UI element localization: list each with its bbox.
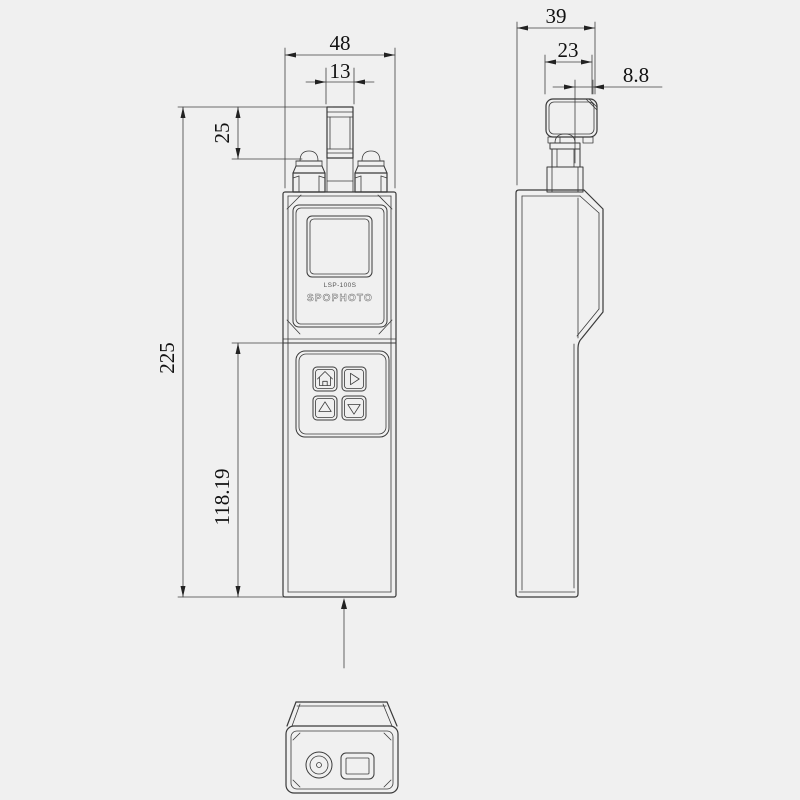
- dim-label-25: 25: [210, 123, 234, 144]
- side-connector: [547, 134, 583, 192]
- brand-logo: SPOPHOTO: [307, 293, 373, 304]
- screen: [307, 216, 372, 277]
- dim-cap-depth: 8.8: [553, 63, 662, 163]
- arrow-right-icon: [351, 373, 360, 384]
- home-icon: [318, 372, 333, 386]
- bottom-view: [286, 598, 398, 793]
- dim-connector-width: 13: [306, 59, 374, 104]
- front-body: [283, 192, 396, 597]
- dim-label-48: 48: [330, 31, 351, 55]
- dim-label-39: 39: [546, 4, 567, 28]
- dim-body-height: 118.19: [210, 343, 284, 597]
- dim-head-depth: 39: [517, 4, 595, 185]
- right-button[interactable]: [342, 367, 366, 391]
- dim-label-13: 13: [330, 59, 351, 83]
- side-body: [516, 190, 603, 597]
- front-keypad: [296, 351, 389, 437]
- dim-label-23: 23: [558, 38, 579, 62]
- front-left-cap: [293, 151, 325, 192]
- dim-overall-width: 48: [285, 31, 395, 188]
- dim-label-8-8: 8.8: [623, 63, 649, 87]
- usb-port: [341, 753, 374, 779]
- technical-drawing-page: LSP-100S SPOPHOTO: [0, 0, 800, 800]
- side-view: 39 23 8.8: [516, 4, 662, 597]
- down-button[interactable]: [342, 396, 366, 420]
- front-view: LSP-100S SPOPHOTO: [155, 31, 396, 597]
- side-cap: [546, 99, 597, 143]
- bottom-top-face: [287, 702, 397, 726]
- front-connector-tube: [327, 107, 353, 192]
- up-button[interactable]: [313, 396, 337, 420]
- front-display-bezel: LSP-100S SPOPHOTO: [283, 195, 396, 343]
- bottom-face: [286, 726, 398, 793]
- model-label: LSP-100S: [324, 282, 357, 289]
- home-button[interactable]: [313, 367, 337, 391]
- dim-label-225: 225: [155, 342, 179, 374]
- arrow-down-icon: [348, 405, 360, 415]
- front-right-cap: [355, 151, 387, 192]
- power-jack: [306, 752, 332, 778]
- projection-arrow: [341, 598, 347, 668]
- dim-label-118: 118.19: [210, 469, 234, 526]
- technical-drawing: LSP-100S SPOPHOTO: [0, 0, 800, 800]
- arrow-up-icon: [319, 402, 331, 412]
